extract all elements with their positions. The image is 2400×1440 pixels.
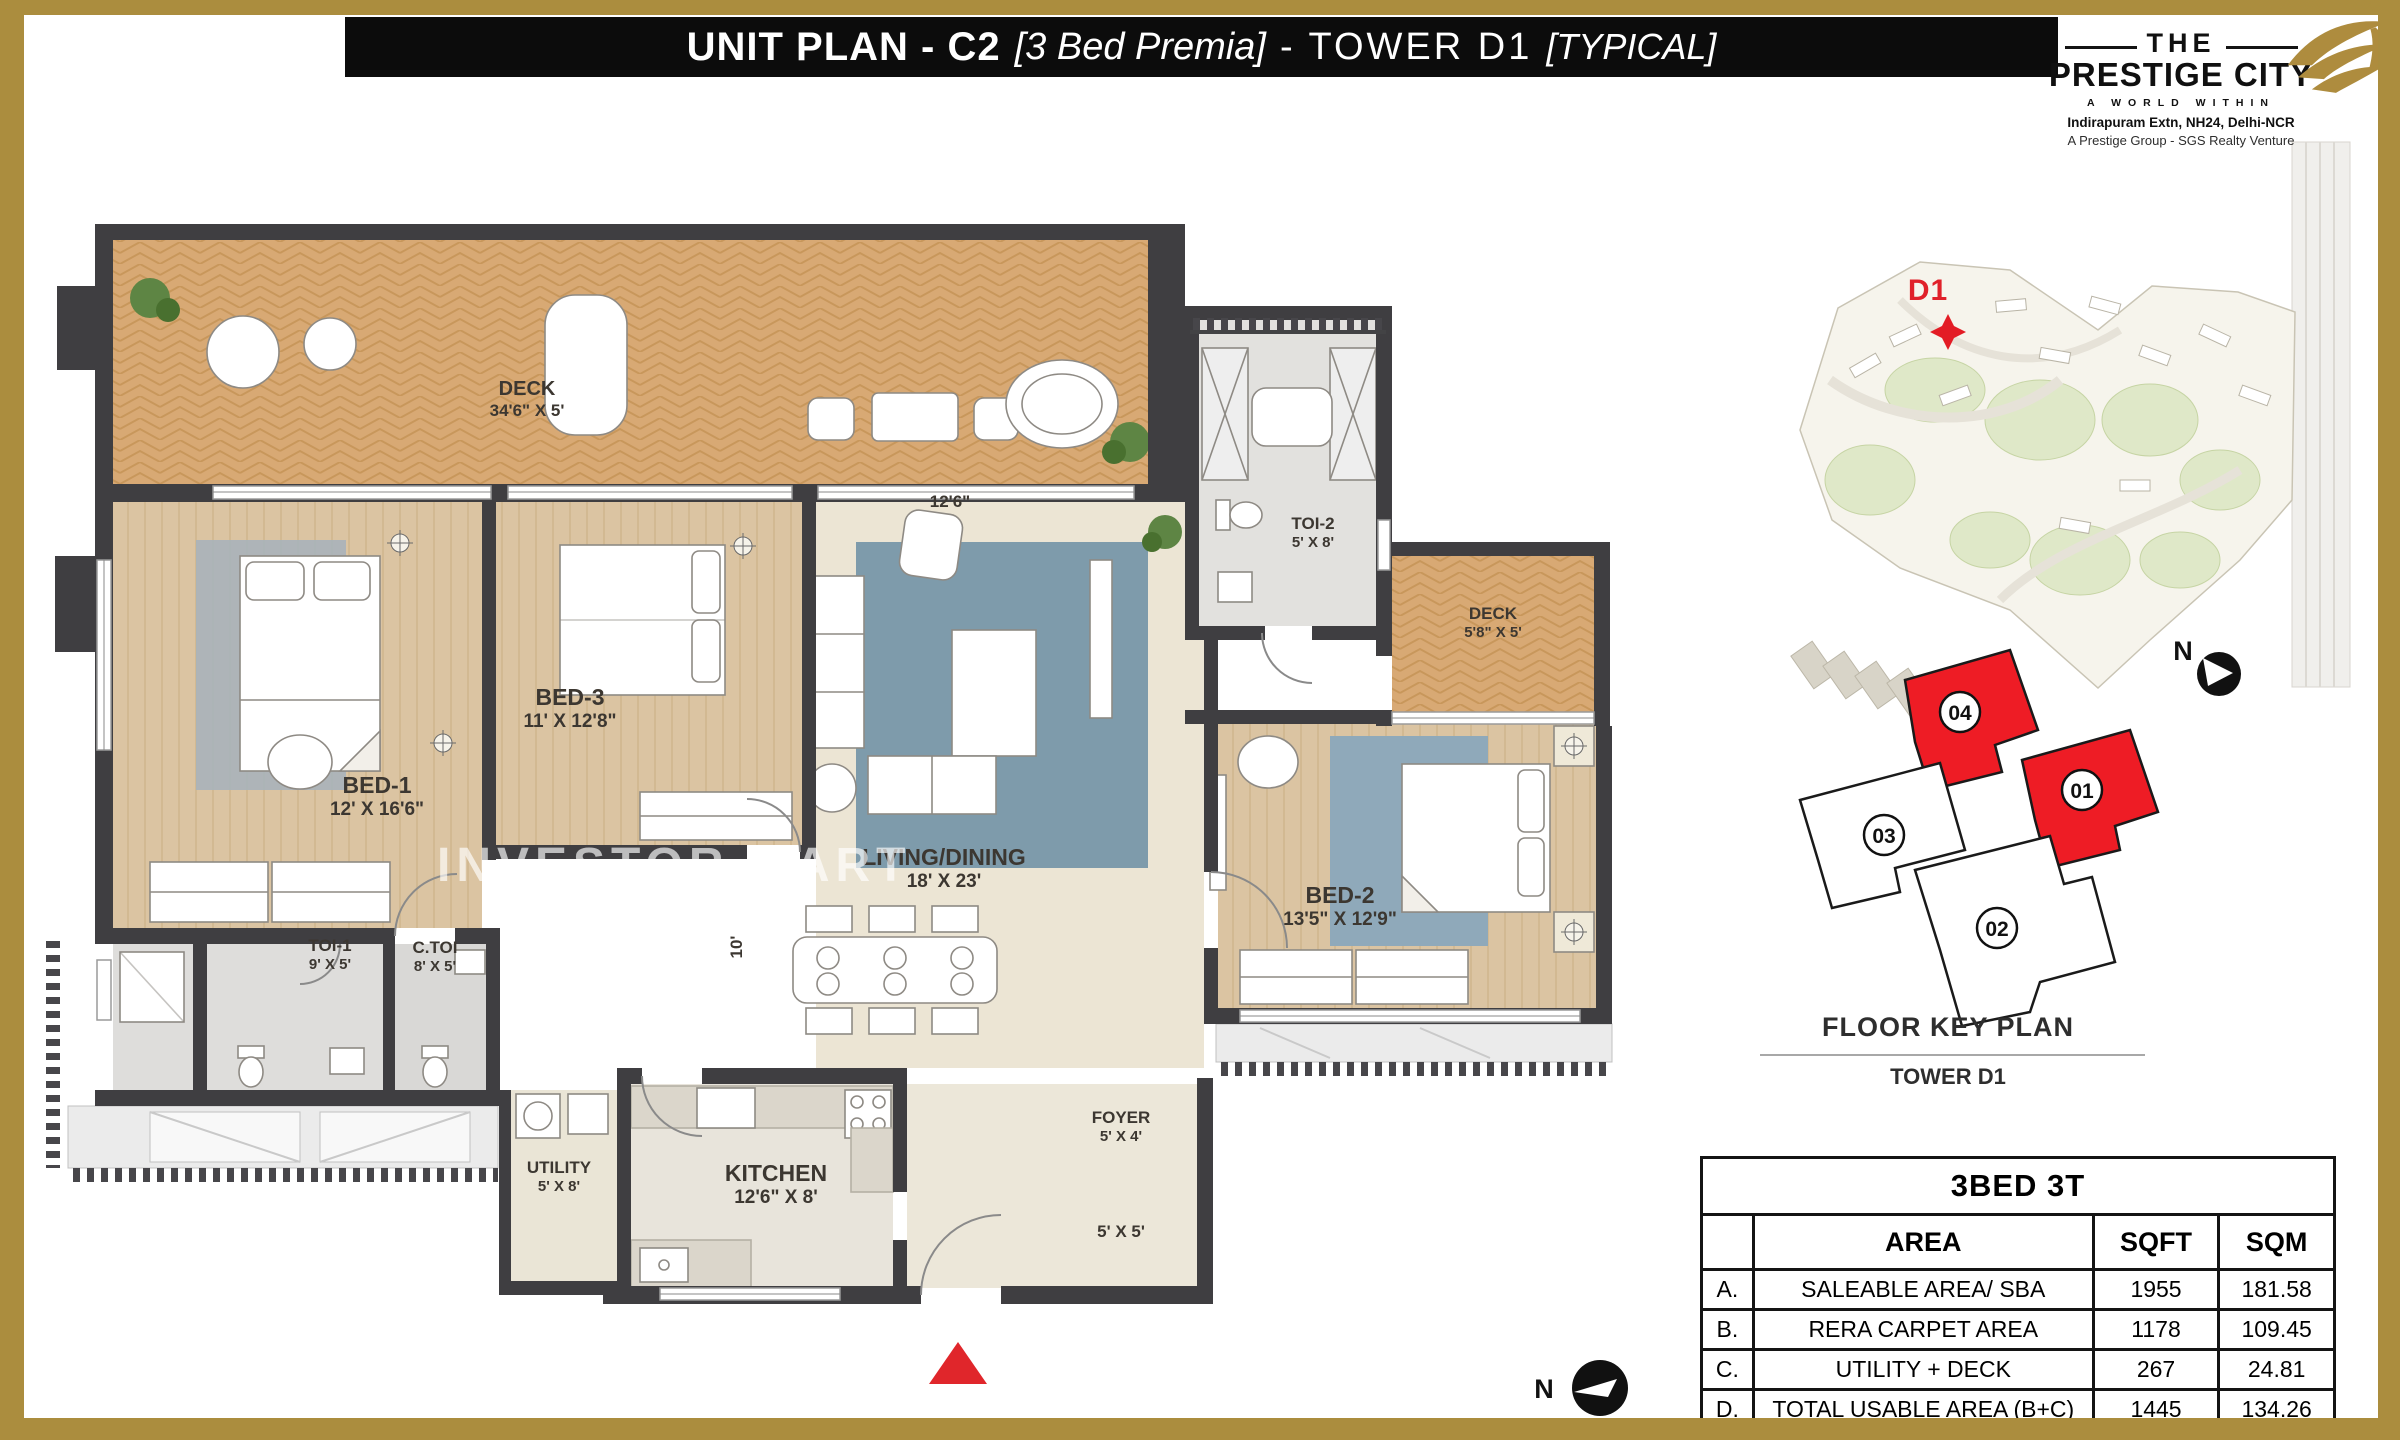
dim-label-foyer-south: 5' X 5' (1097, 1222, 1145, 1242)
title-plan-code: UNIT PLAN - C2 (687, 25, 1001, 70)
col-header-blank (1702, 1215, 1754, 1270)
room-label-toi-1: TOI-1 9' X 5' (308, 936, 351, 973)
site-map: D1 (1791, 142, 2350, 716)
room-label-deck-top: DECK 34'6" X 5' (490, 378, 565, 421)
room-label-bed-2: BED-2 13'5" X 12'9" (1283, 882, 1397, 931)
unit-badge-03: 03 (1872, 825, 1895, 848)
floor-key-plan: 04 01 03 02 FLOOR KEY PLAN TOWER D1 (1760, 650, 2158, 1089)
north-label-top: N (2173, 636, 2193, 666)
col-header-sqm: SQM (2219, 1215, 2335, 1270)
eagle-icon (2286, 8, 2398, 114)
col-header-sqft: SQFT (2093, 1215, 2219, 1270)
logo-tagline: A WORLD WITHIN (2042, 97, 2320, 109)
room-label-utility: UTILITY 5' X 8' (527, 1158, 591, 1195)
unit-badge-04: 04 (1948, 702, 1972, 725)
area-table: 3BED 3T AREA SQFT SQM A. SALEABLE AREA/ … (1700, 1156, 2336, 1431)
logo-rule-left (2065, 46, 2137, 49)
entry-arrow (929, 1342, 987, 1384)
unit-badge-01: 01 (2070, 780, 2094, 803)
title-bar: UNIT PLAN - C2 [3 Bed Premia] - TOWER D1… (345, 17, 2058, 77)
dim-label-living-top: 12'6" (930, 492, 970, 512)
compass-bottom: N (1534, 1360, 1628, 1416)
compass-top: N (2173, 636, 2241, 696)
key-plan-title: FLOOR KEY PLAN (1822, 1012, 2074, 1042)
key-plan-subtitle: TOWER D1 (1890, 1064, 2006, 1089)
room-label-c-toi: C.TOI 8' X 5' (412, 938, 457, 975)
logo-line-the: THE (2042, 28, 2320, 59)
col-header-area: AREA (1753, 1215, 2093, 1270)
brochure-page: D1 04 01 03 02 FLOOR KEY PLAN TOW (0, 0, 2400, 1440)
title-unit-type: [3 Bed Premia] (1015, 26, 1266, 69)
table-row: C. UTILITY + DECK 267 24.81 (1702, 1350, 2335, 1390)
table-row: A. SALEABLE AREA/ SBA 1955 181.58 (1702, 1270, 2335, 1310)
room-label-deck-right: DECK 5'8" X 5' (1464, 604, 1522, 641)
site-map-tower-label: D1 (1908, 274, 1948, 307)
title-typical: [TYPICAL] (1546, 26, 1716, 68)
watermark: INVESTOR MART (437, 838, 911, 893)
logo-the-text: THE (2147, 28, 2216, 59)
room-label-toi-2: TOI-2 5' X 8' (1291, 514, 1334, 551)
table-row: B. RERA CARPET AREA 1178 109.45 (1702, 1310, 2335, 1350)
room-label-kitchen: KITCHEN 12'6" X 8' (725, 1160, 827, 1209)
north-label-bottom: N (1534, 1374, 1554, 1404)
dim-label-dining-side: 10' (727, 936, 747, 959)
logo-venture: A Prestige Group - SGS Realty Venture (2042, 133, 2320, 148)
room-label-foyer: FOYER 5' X 4' (1092, 1108, 1151, 1145)
unit-badge-02: 02 (1985, 918, 2008, 941)
logo-address: Indirapuram Extn, NH24, Delhi-NCR (2042, 115, 2320, 130)
table-row: D. TOTAL USABLE AREA (B+C) 1445 134.26 (1702, 1390, 2335, 1430)
logo-brand-name: PRESTIGE CITY (2042, 56, 2320, 94)
room-label-bed-1: BED-1 12' X 16'6" (330, 772, 424, 821)
unit-floor-plan (46, 224, 1612, 1384)
title-tower: - TOWER D1 (1280, 26, 1532, 69)
brand-logo: THE PRESTIGE CITY A WORLD WITHIN Indirap… (2042, 28, 2320, 148)
room-label-bed-3: BED-3 11' X 12'8" (523, 684, 616, 733)
area-table-title: 3BED 3T (1702, 1158, 2335, 1215)
